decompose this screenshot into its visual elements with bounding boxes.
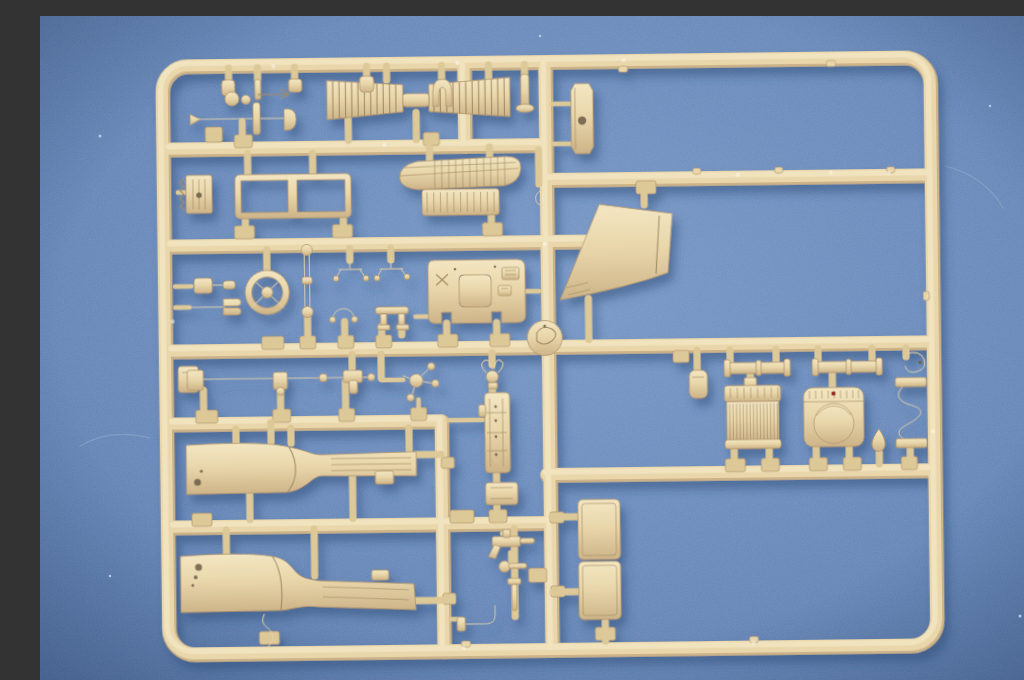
sprue-photo: Tan plastic model-kit sprue with truck p… [40,16,1024,680]
crank-disc [527,320,562,355]
canister-part [689,370,707,398]
connector-pad-part [486,482,518,504]
small-block-b [360,76,374,92]
louver-connector [403,93,429,106]
radiator-shell [803,387,864,447]
steering-wheel [245,270,290,315]
small-block-a [289,79,302,92]
sprue-photo-canvas [40,16,1024,680]
radiator [724,377,781,449]
side-bracket-plate [571,83,594,153]
stowage-door [578,499,621,620]
